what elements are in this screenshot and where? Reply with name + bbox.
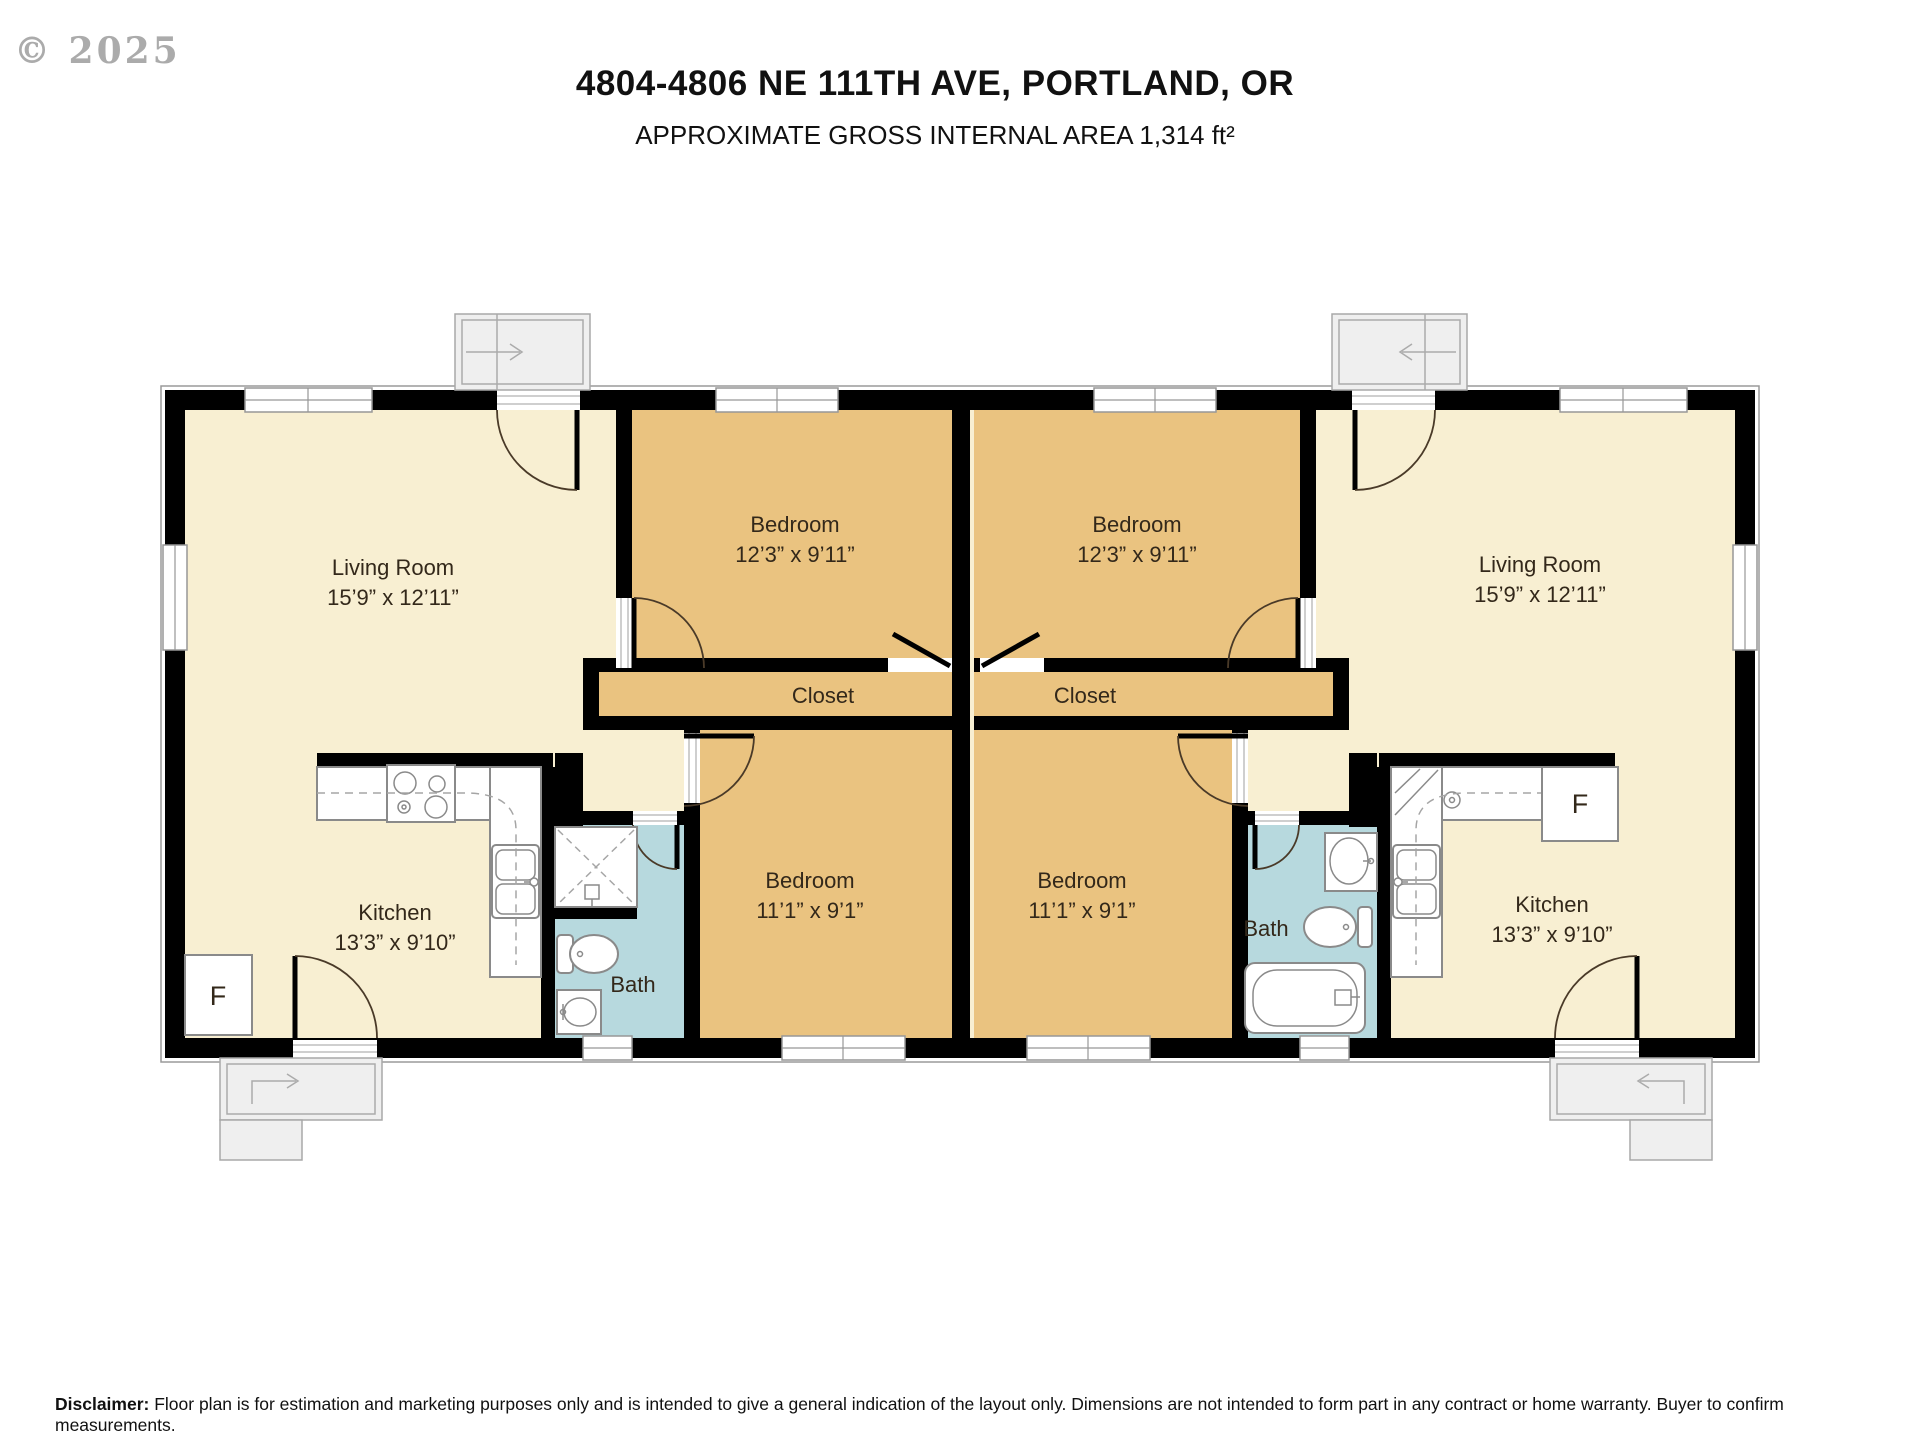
window-icon <box>1027 1036 1150 1060</box>
wall-kitchen-bath-right <box>1377 767 1391 1038</box>
bathtub-icon <box>1245 963 1365 1033</box>
living-room-right-label: Living Room <box>1479 552 1601 577</box>
fridge-left-label: F <box>210 981 227 1011</box>
closet-left-floor <box>599 672 958 716</box>
window-icon <box>1300 1036 1349 1060</box>
wall-bottom <box>165 1038 1755 1058</box>
closet-left-label: Closet <box>792 683 854 708</box>
wall-left <box>165 390 185 1058</box>
entry-porch-left <box>455 314 590 390</box>
toilet-icon <box>557 935 618 973</box>
toilet-icon <box>1304 907 1372 947</box>
wall-top <box>165 390 1755 410</box>
wall-kitchen-bath-left <box>541 767 555 1038</box>
kitchen-right-label: Kitchen <box>1515 892 1588 917</box>
wall-right <box>1735 390 1755 1058</box>
disclaimer-label: Disclaimer: <box>55 1394 149 1414</box>
window-icon <box>1733 545 1757 650</box>
kitchen-right-dims: 13’3” x 9’10” <box>1491 922 1612 947</box>
window-icon <box>782 1036 905 1060</box>
entry-porch-right <box>1332 314 1467 390</box>
window-icon <box>163 545 187 650</box>
bedroom2-right-label: Bedroom <box>1037 868 1126 893</box>
bedroom1-left-label: Bedroom <box>750 512 839 537</box>
kitchen-left-dims: 13’3” x 9’10” <box>334 930 455 955</box>
kitchen-left-label: Kitchen <box>358 900 431 925</box>
disclaimer: Disclaimer: Floor plan is for estimation… <box>55 1394 1895 1436</box>
window-icon <box>583 1036 632 1060</box>
bedroom1-right-dims: 12’3” x 9’11” <box>1077 542 1196 567</box>
bath-sink-icon <box>1325 833 1377 891</box>
window-icon <box>245 388 372 412</box>
bedroom2-left-dims: 11’1” x 9’1” <box>756 898 863 923</box>
bedroom1-right-label: Bedroom <box>1092 512 1181 537</box>
bath-right-label: Bath <box>1243 916 1288 941</box>
window-icon <box>716 388 838 412</box>
back-porch-right <box>1550 1058 1712 1160</box>
disclaimer-text: Floor plan is for estimation and marketi… <box>55 1394 1784 1435</box>
bedroom1-left-dims: 12’3” x 9’11” <box>735 542 854 567</box>
back-porch-left <box>220 1058 382 1160</box>
closet-right-label: Closet <box>1054 683 1116 708</box>
living-room-left-label: Living Room <box>332 555 454 580</box>
wall-shower-stub-left <box>543 907 637 919</box>
bedroom2-left-label: Bedroom <box>765 868 854 893</box>
wall-closet-bottom-right <box>974 716 1349 730</box>
living-room-left-dims: 15’9” x 12’11” <box>327 585 459 610</box>
wall-kitchen-right <box>1379 753 1615 767</box>
wall-closet-bottom-left <box>583 716 958 730</box>
fridge-right-label: F <box>1572 789 1589 819</box>
wall-hall-chunk-left <box>555 753 583 827</box>
floor-plan-page: © 2025 4804-4806 NE 111TH AVE, PORTLAND,… <box>0 0 1920 1440</box>
bath-left-label: Bath <box>610 972 655 997</box>
bedroom2-right-dims: 11’1” x 9’1” <box>1028 898 1135 923</box>
closet-right-floor <box>974 672 1333 716</box>
window-icon <box>1094 388 1216 412</box>
window-icon <box>1560 388 1687 412</box>
living-room-right-dims: 15’9” x 12’11” <box>1474 582 1606 607</box>
shower-icon <box>555 827 637 907</box>
wall-hall-chunk-right <box>1349 753 1377 827</box>
floor-plan-drawing: Living Room 15’9” x 12’11” Living Room 1… <box>0 0 1920 1440</box>
bath-sink-icon <box>557 990 601 1034</box>
